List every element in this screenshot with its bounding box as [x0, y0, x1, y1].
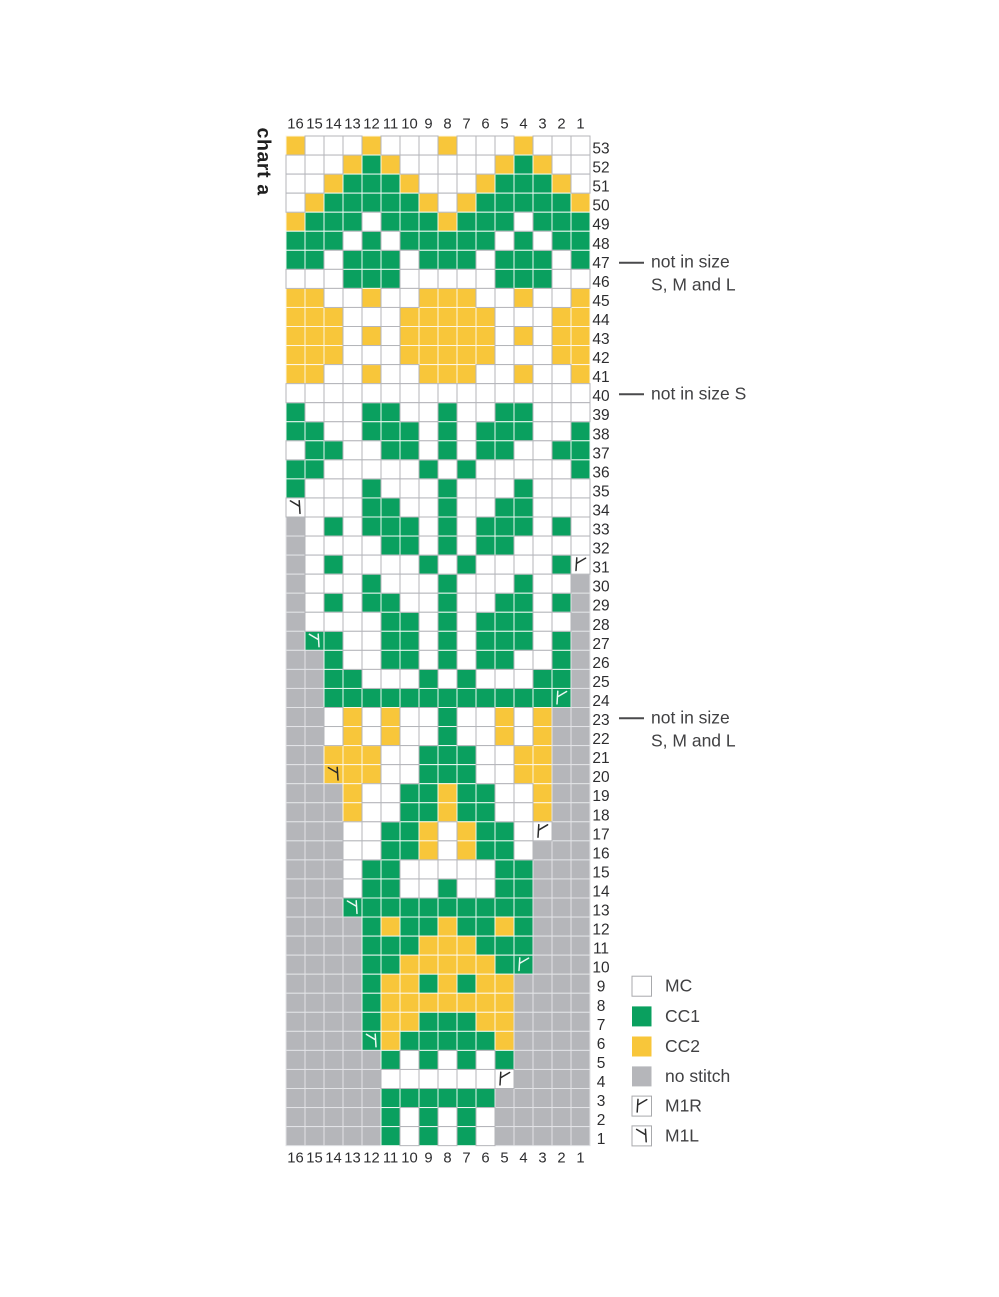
- svg-text:17: 17: [592, 826, 609, 843]
- svg-text:46: 46: [592, 274, 609, 291]
- svg-text:31: 31: [592, 560, 609, 577]
- svg-text:1: 1: [576, 1151, 584, 1167]
- svg-text:20: 20: [592, 769, 610, 786]
- svg-text:6: 6: [481, 1151, 489, 1167]
- svg-text:14: 14: [325, 117, 341, 133]
- svg-text:MC: MC: [665, 976, 692, 996]
- svg-text:M1L: M1L: [665, 1125, 699, 1145]
- svg-text:51: 51: [592, 179, 609, 196]
- svg-text:1: 1: [597, 1131, 606, 1148]
- svg-text:chart a: chart a: [253, 128, 275, 196]
- svg-text:13: 13: [344, 1151, 360, 1167]
- svg-text:3: 3: [538, 1151, 546, 1167]
- svg-text:not in size: not in size: [651, 708, 730, 728]
- svg-text:14: 14: [325, 1151, 341, 1167]
- svg-text:23: 23: [592, 712, 609, 729]
- svg-text:CC1: CC1: [665, 1006, 700, 1026]
- svg-text:9: 9: [597, 979, 606, 996]
- svg-text:14: 14: [592, 884, 610, 901]
- svg-text:34: 34: [592, 503, 610, 520]
- svg-text:12: 12: [592, 922, 609, 939]
- svg-text:15: 15: [306, 117, 322, 133]
- svg-text:19: 19: [592, 788, 609, 805]
- svg-text:5: 5: [500, 1151, 508, 1167]
- svg-text:30: 30: [592, 579, 610, 596]
- svg-text:7: 7: [597, 1017, 606, 1034]
- svg-text:2: 2: [597, 1112, 606, 1129]
- svg-text:13: 13: [344, 117, 360, 133]
- svg-text:2: 2: [557, 117, 565, 133]
- svg-text:11: 11: [383, 117, 398, 133]
- svg-text:not in size S: not in size S: [651, 384, 746, 404]
- svg-text:9: 9: [424, 1151, 432, 1167]
- svg-text:6: 6: [481, 117, 489, 133]
- svg-text:16: 16: [592, 845, 609, 862]
- svg-text:26: 26: [592, 655, 609, 672]
- svg-text:16: 16: [287, 1151, 303, 1167]
- svg-text:32: 32: [592, 541, 609, 558]
- svg-text:43: 43: [592, 331, 609, 348]
- svg-text:42: 42: [592, 350, 609, 367]
- svg-text:10: 10: [592, 960, 610, 977]
- svg-text:11: 11: [593, 941, 609, 958]
- svg-text:6: 6: [597, 1036, 606, 1053]
- svg-text:38: 38: [592, 426, 609, 443]
- svg-text:40: 40: [592, 388, 610, 405]
- svg-text:48: 48: [592, 236, 609, 253]
- svg-text:10: 10: [401, 1151, 417, 1167]
- svg-text:9: 9: [424, 117, 432, 133]
- svg-text:not in size: not in size: [651, 252, 730, 272]
- svg-text:15: 15: [306, 1151, 322, 1167]
- svg-text:M1R: M1R: [665, 1096, 702, 1116]
- svg-text:49: 49: [592, 217, 609, 234]
- svg-text:24: 24: [592, 693, 610, 710]
- svg-text:4: 4: [519, 1151, 527, 1167]
- svg-text:CC2: CC2: [665, 1036, 700, 1056]
- svg-text:53: 53: [592, 141, 609, 158]
- svg-text:22: 22: [592, 731, 609, 748]
- svg-text:1: 1: [576, 117, 584, 133]
- svg-text:15: 15: [592, 864, 609, 881]
- svg-text:28: 28: [592, 617, 609, 634]
- svg-text:52: 52: [592, 160, 609, 177]
- svg-text:37: 37: [592, 445, 609, 462]
- svg-text:16: 16: [287, 117, 303, 133]
- svg-text:44: 44: [592, 312, 610, 329]
- svg-text:12: 12: [363, 117, 379, 133]
- svg-text:25: 25: [592, 674, 609, 691]
- svg-text:7: 7: [462, 1151, 470, 1167]
- svg-text:36: 36: [592, 464, 609, 481]
- svg-text:33: 33: [592, 522, 609, 539]
- svg-text:7: 7: [462, 117, 470, 133]
- svg-text:5: 5: [597, 1055, 606, 1072]
- svg-text:no stitch: no stitch: [665, 1066, 730, 1086]
- svg-text:35: 35: [592, 483, 609, 500]
- svg-text:3: 3: [597, 1093, 606, 1110]
- svg-text:21: 21: [592, 750, 609, 767]
- svg-text:45: 45: [592, 293, 609, 310]
- svg-text:29: 29: [592, 598, 609, 615]
- svg-text:8: 8: [597, 998, 606, 1015]
- svg-text:11: 11: [383, 1151, 398, 1167]
- svg-text:41: 41: [592, 369, 609, 386]
- svg-text:47: 47: [592, 255, 609, 272]
- svg-text:12: 12: [363, 1151, 379, 1167]
- svg-text:18: 18: [592, 807, 609, 824]
- svg-text:S, M and L: S, M and L: [651, 275, 736, 295]
- svg-text:10: 10: [401, 117, 417, 133]
- svg-text:8: 8: [443, 117, 451, 133]
- svg-text:5: 5: [500, 117, 508, 133]
- svg-text:13: 13: [592, 903, 609, 920]
- svg-text:2: 2: [557, 1151, 565, 1167]
- svg-text:39: 39: [592, 407, 609, 424]
- svg-text:S, M and L: S, M and L: [651, 731, 736, 751]
- svg-text:8: 8: [443, 1151, 451, 1167]
- svg-text:3: 3: [538, 117, 546, 133]
- svg-text:50: 50: [592, 198, 610, 215]
- svg-text:27: 27: [592, 636, 609, 653]
- svg-text:4: 4: [519, 117, 527, 133]
- svg-text:4: 4: [597, 1074, 606, 1091]
